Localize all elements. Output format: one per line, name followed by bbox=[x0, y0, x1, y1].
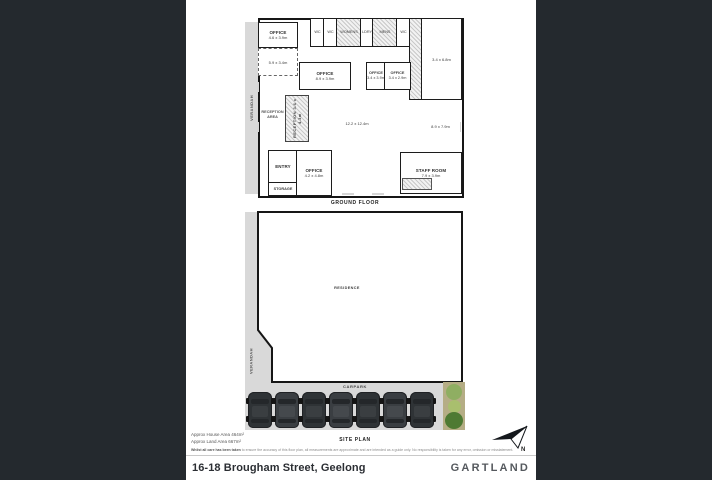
window-marker bbox=[257, 122, 259, 132]
north-arrow-icon: N bbox=[490, 424, 530, 452]
room-open-area: 5.9 x 3.4m bbox=[258, 48, 298, 76]
document-page: VERANDAH OFFICE 4.6 x 3.9m 5.9 x 3.4m WC… bbox=[186, 0, 536, 480]
house-area: Approx House Area 464m² bbox=[191, 432, 244, 439]
car-top-view bbox=[383, 392, 407, 428]
ground-floor-plan: VERANDAH OFFICE 4.6 x 3.9m 5.9 x 3.4m WC… bbox=[242, 12, 468, 208]
room-label: LDRY bbox=[362, 30, 372, 35]
window-marker bbox=[372, 193, 384, 195]
room-entry: ENTRY bbox=[268, 150, 298, 184]
room-label: RECEPTION AREA bbox=[260, 110, 285, 119]
garden-strip bbox=[443, 382, 465, 430]
window-marker bbox=[257, 82, 259, 92]
land-area: Approx Land Area 667m² bbox=[191, 439, 244, 446]
room-mens-bathroom: MENS bbox=[372, 18, 398, 47]
reception-area: RECEPTION AREA bbox=[260, 104, 285, 126]
room-right: 3.4 x 6.8m bbox=[421, 18, 462, 100]
verandah-label: VERANDAH bbox=[249, 95, 254, 121]
car-top-view bbox=[410, 392, 434, 428]
window-marker bbox=[342, 193, 354, 195]
property-address: 16-18 Brougham Street, Geelong bbox=[192, 462, 366, 474]
disclaimer-lead: Whilst all care has been taken bbox=[191, 448, 241, 452]
room-label: WC bbox=[314, 30, 320, 35]
room-dims: 12.2 x 12.4m bbox=[345, 121, 368, 126]
room-dims: 8.9 x 7.9m bbox=[431, 124, 450, 129]
room-dims: 3.4 x 3.9m bbox=[367, 76, 385, 81]
disclaimer-body: to ensure the accuracy of this floor pla… bbox=[241, 448, 514, 452]
residence-label-box: RESIDENCE bbox=[302, 280, 392, 296]
room-label: WC bbox=[327, 30, 333, 35]
room-office-mid: OFFICE 8.9 x 3.9m bbox=[299, 62, 351, 90]
room-dims: 3.4 x 2.9m bbox=[389, 76, 407, 81]
residence-outline bbox=[257, 211, 463, 383]
site-plan-caption: SITE PLAN bbox=[242, 437, 468, 443]
room-label: ENTRY bbox=[275, 164, 291, 170]
room-womens-bathroom: WOMENS bbox=[336, 18, 362, 47]
room-label: STORAGE bbox=[274, 187, 293, 192]
residence-label: RESIDENCE bbox=[334, 286, 360, 291]
kitchen-counter bbox=[402, 178, 432, 190]
room-dims: 4.2 x 4.8m bbox=[305, 173, 324, 178]
tree-icon bbox=[445, 412, 463, 429]
room-storage: STORAGE bbox=[268, 182, 298, 196]
car-top-view bbox=[329, 392, 353, 428]
agency-logo: GARTLAND bbox=[451, 462, 530, 474]
car-top-view bbox=[302, 392, 326, 428]
room-centre: 12.2 x 12.4m bbox=[312, 112, 402, 134]
car-top-view bbox=[356, 392, 380, 428]
room-dims: 5.9 x 3.4m bbox=[269, 60, 288, 65]
room-dims: 4.6 x 3.9m bbox=[269, 35, 288, 40]
room-open-right: 8.9 x 7.9m bbox=[421, 116, 460, 136]
site-verandah-label: VERANDAH bbox=[247, 344, 255, 378]
site-plan: RESIDENCE VERANDAH CARPARK SITE PLAN bbox=[242, 208, 468, 448]
area-summary: Approx House Area 464m² Approx Land Area… bbox=[191, 432, 244, 446]
ground-floor-caption: GROUND FLOOR bbox=[242, 200, 468, 206]
carpark-row bbox=[242, 392, 442, 430]
bush-icon bbox=[446, 384, 462, 400]
floorplan-page: { "ground_floor": { "caption": "GROUND F… bbox=[0, 0, 712, 480]
room-dims: 3.4 x 6.8m bbox=[432, 57, 451, 62]
address-bar: 16-18 Brougham Street, Geelong GARTLAND bbox=[186, 455, 536, 480]
carpark-label: CARPARK bbox=[242, 384, 468, 389]
room-office-topleft: OFFICE 4.6 x 3.9m bbox=[258, 22, 298, 48]
room-dims: 8.9 x 3.9m bbox=[316, 76, 335, 81]
room-label: MENS bbox=[380, 30, 391, 35]
room-office-b: OFFICE 3.4 x 2.9m bbox=[384, 62, 411, 90]
car-top-view bbox=[275, 392, 299, 428]
room-label: WOMENS bbox=[340, 30, 358, 35]
verandah-strip: VERANDAH bbox=[245, 22, 258, 194]
room-office-c: OFFICE 4.2 x 4.8m bbox=[296, 150, 332, 196]
room-label: WC bbox=[400, 30, 406, 35]
car-top-view bbox=[248, 392, 272, 428]
reception-desk: RECEPTION 3.6 x 4.3m bbox=[285, 95, 309, 142]
disclaimer-text: Whilst all care has been taken to ensure… bbox=[191, 448, 531, 452]
room-office-a: OFFICE 3.4 x 3.9m bbox=[366, 62, 386, 90]
north-letter: N bbox=[521, 447, 525, 452]
desk-label: RECEPTION 3.6 x 4.3m bbox=[292, 96, 302, 141]
